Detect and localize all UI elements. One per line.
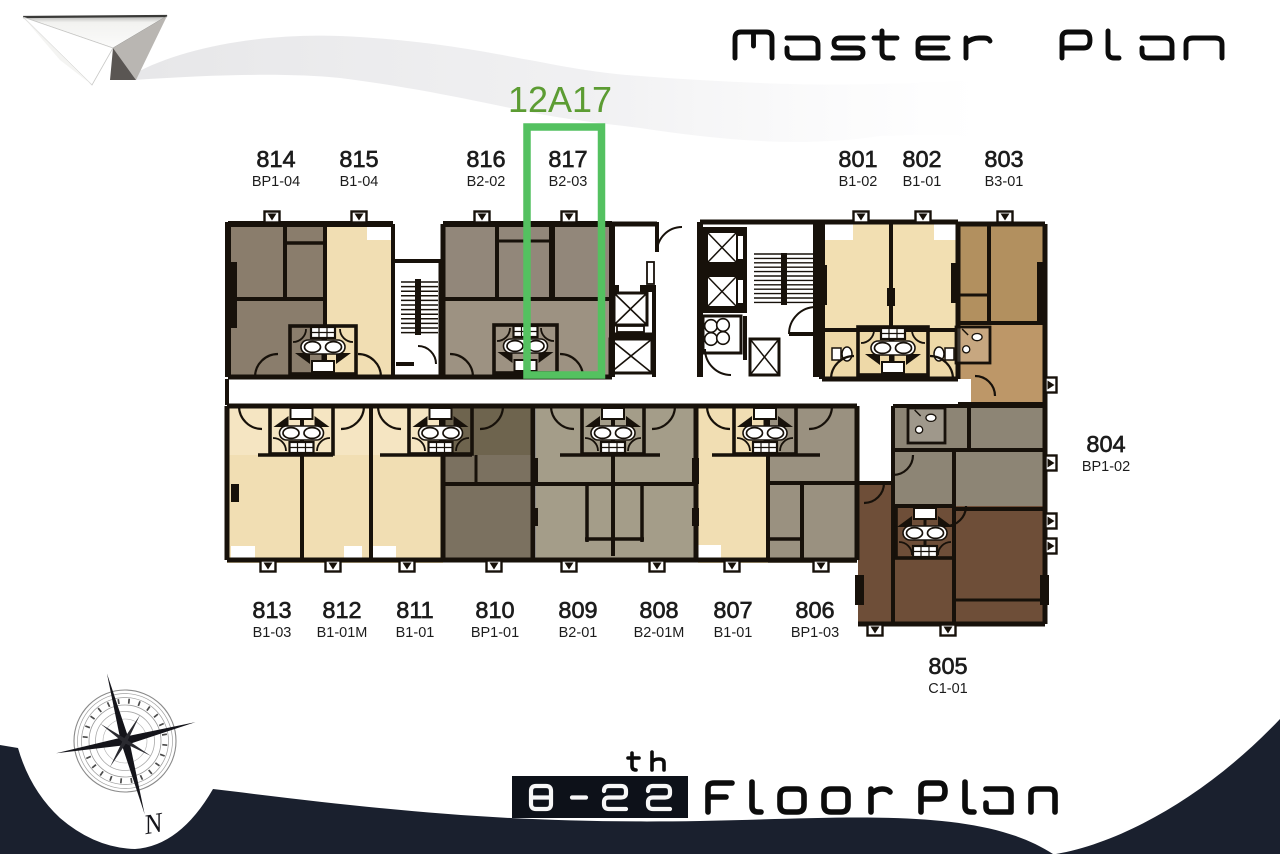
svg-text:B3-01: B3-01 [985, 174, 1024, 190]
svg-text:816: 816 [466, 146, 505, 172]
svg-text:B2-03: B2-03 [549, 174, 588, 190]
svg-text:B1-02: B1-02 [839, 174, 878, 190]
svg-text:814: 814 [256, 146, 295, 172]
svg-text:B2-02: B2-02 [467, 174, 506, 190]
svg-text:B2-01M: B2-01M [634, 625, 685, 641]
svg-text:810: 810 [475, 597, 514, 623]
svg-text:N: N [141, 807, 167, 841]
svg-text:B1-01M: B1-01M [317, 625, 368, 641]
svg-text:12A17: 12A17 [508, 79, 612, 120]
svg-text:802: 802 [902, 146, 941, 172]
svg-text:807: 807 [713, 597, 752, 623]
svg-text:B1-01: B1-01 [903, 174, 942, 190]
svg-text:801: 801 [838, 146, 877, 172]
svg-text:B1-01: B1-01 [396, 625, 435, 641]
svg-text:B1-04: B1-04 [340, 174, 379, 190]
svg-text:805: 805 [928, 653, 967, 679]
svg-text:B2-01: B2-01 [559, 625, 598, 641]
svg-text:BP1-04: BP1-04 [252, 174, 300, 190]
svg-text:BP1-03: BP1-03 [791, 625, 839, 641]
svg-text:811: 811 [396, 597, 433, 623]
svg-text:BP1-02: BP1-02 [1082, 459, 1130, 475]
svg-text:806: 806 [795, 597, 834, 623]
svg-text:B1-03: B1-03 [253, 625, 292, 641]
svg-text:815: 815 [339, 146, 378, 172]
svg-text:C1-01: C1-01 [928, 681, 968, 697]
svg-text:803: 803 [984, 146, 1023, 172]
svg-text:808: 808 [639, 597, 678, 623]
svg-text:804: 804 [1086, 431, 1125, 457]
svg-text:809: 809 [558, 597, 597, 623]
svg-text:B1-01: B1-01 [714, 625, 753, 641]
svg-text:817: 817 [548, 146, 587, 172]
svg-text:813: 813 [252, 597, 291, 623]
svg-text:BP1-01: BP1-01 [471, 625, 519, 641]
svg-text:812: 812 [322, 597, 361, 623]
